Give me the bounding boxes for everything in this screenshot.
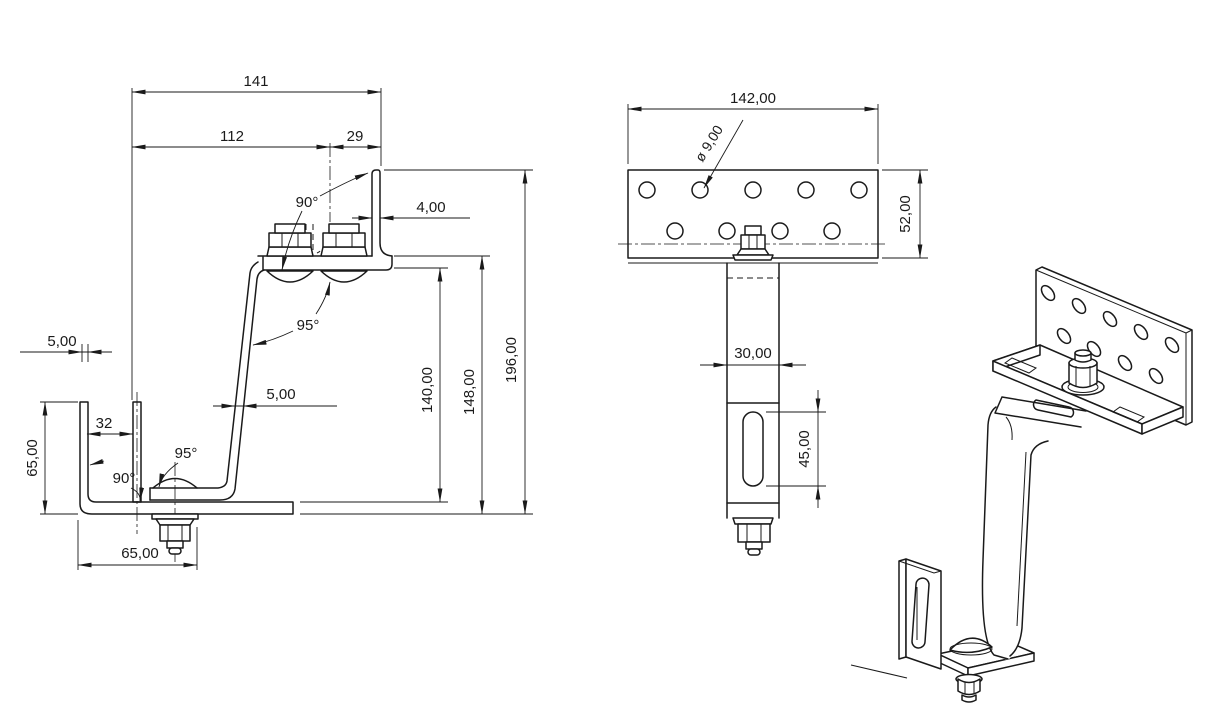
dim-arm-thickness: 5,00 [266, 386, 295, 403]
top-section-view: 142,00 ø 9,00 52,00 30,00 45,00 [618, 90, 928, 555]
section-part-outline [618, 170, 888, 555]
dim-flange-thickness: 4,00 [416, 199, 445, 216]
iso-foot-bracket [899, 559, 941, 669]
dim-left-width: 112 [220, 128, 244, 145]
section-dimensions: 142,00 ø 9,00 52,00 30,00 45,00 [628, 90, 928, 508]
dim-wall-thickness: 5,00 [47, 333, 76, 350]
dim-bar-width: 30,00 [734, 345, 772, 362]
dim-channel-height: 65,00 [24, 439, 41, 477]
isometric-view [851, 267, 1192, 702]
technical-drawing-canvas: 141 112 29 4,00 90° 95° 5,00 [0, 0, 1207, 727]
iso-hook-arm [982, 397, 1087, 660]
dim-lower-bend-angle: 95° [175, 445, 198, 462]
dim-slot-length: 45,00 [796, 430, 813, 468]
dim-total-height: 196,00 [503, 337, 520, 383]
dim-base-width: 65,00 [121, 545, 159, 562]
drawing-page: 141 112 29 4,00 90° 95° 5,00 [0, 0, 1207, 727]
dim-mid-height: 148,00 [461, 369, 478, 415]
dim-plate-width: 142,00 [730, 90, 776, 107]
dim-top-angle: 90° [296, 194, 319, 211]
dim-total-width: 141 [243, 73, 268, 90]
front-view: 141 112 29 4,00 90° 95° 5,00 [20, 73, 533, 570]
dim-channel-inner-width: 32 [96, 415, 113, 432]
dim-bottom-angle: 90° [113, 470, 136, 487]
front-dimensions: 141 112 29 4,00 90° 95° 5,00 [20, 73, 533, 570]
dim-inner-height: 140,00 [419, 367, 436, 413]
dim-right-width: 29 [347, 128, 364, 145]
front-bottom-bolt [152, 462, 198, 562]
iso-ground-line [851, 665, 907, 678]
dim-upper-bend-angle: 95° [297, 317, 320, 334]
dim-plate-height: 52,00 [897, 195, 914, 233]
